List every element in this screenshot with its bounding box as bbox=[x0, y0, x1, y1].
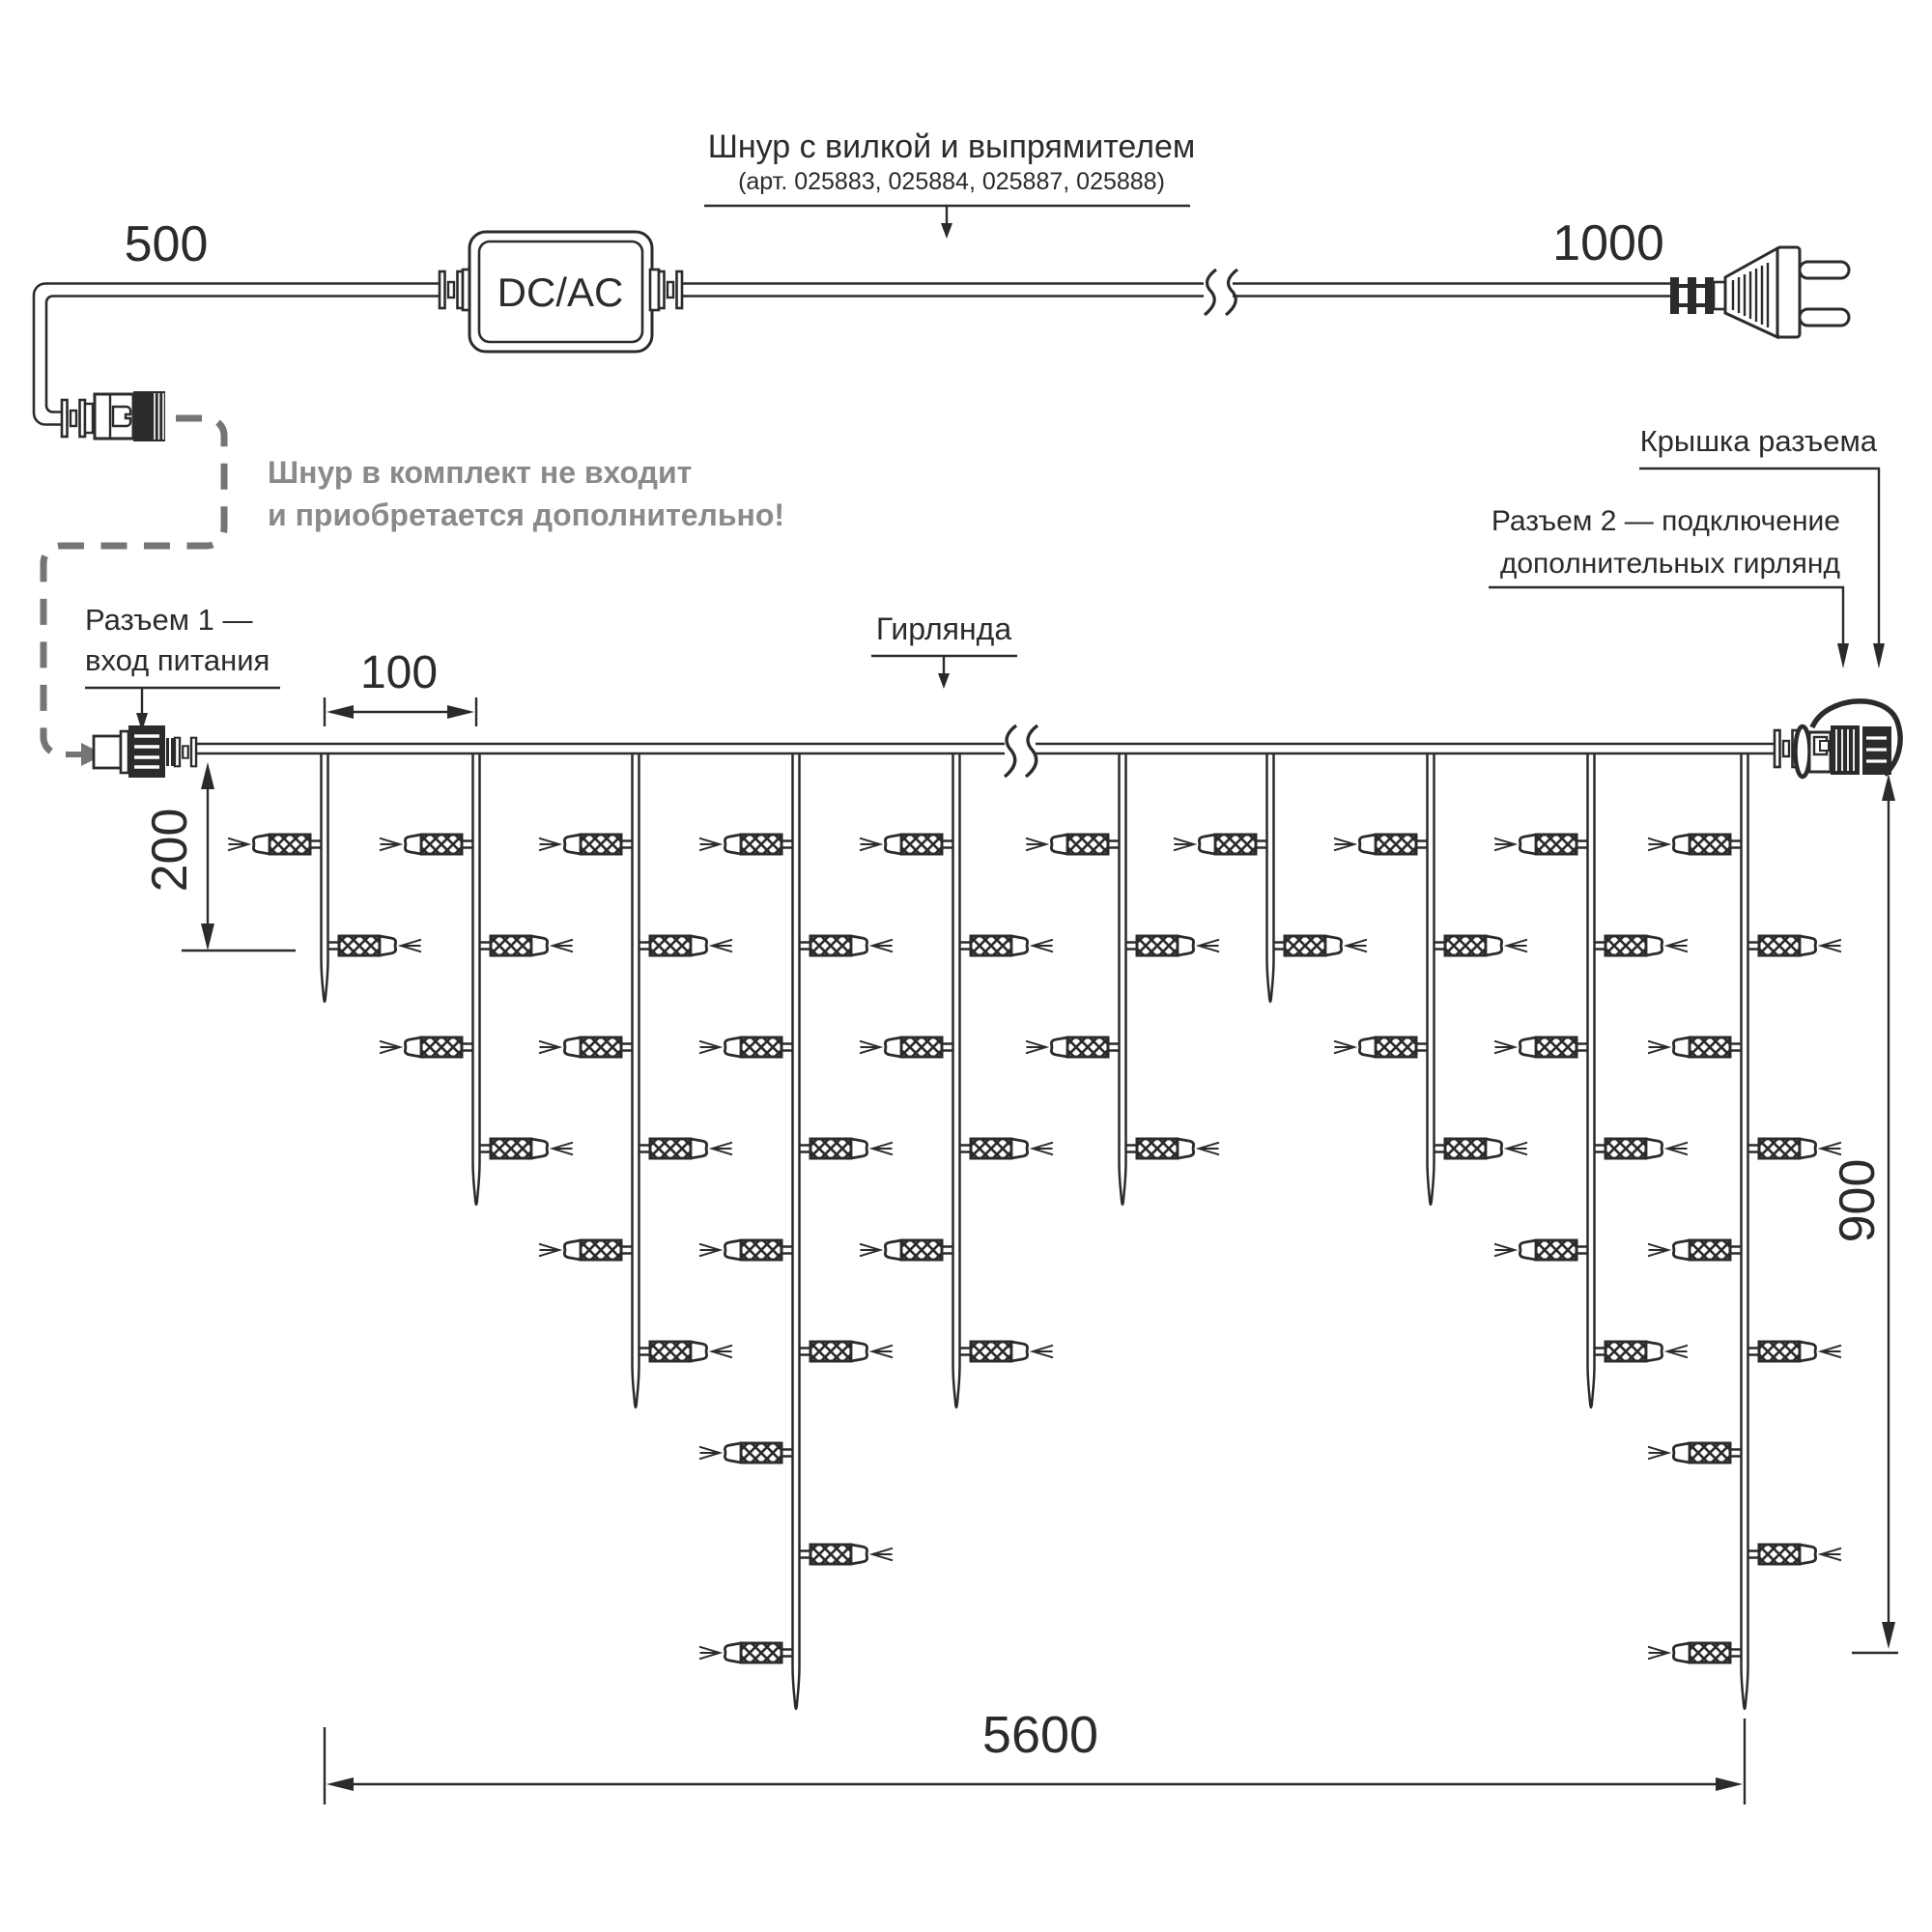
svg-text:DC/AC: DC/AC bbox=[497, 270, 624, 315]
svg-text:Разъем 2 — подключение: Разъем 2 — подключение bbox=[1492, 505, 1840, 537]
svg-text:(арт. 025883, 025884, 025887,: (арт. 025883, 025884, 025887, 025888) bbox=[738, 168, 1165, 195]
svg-text:200: 200 bbox=[142, 809, 198, 893]
svg-text:и приобретается дополнительно!: и приобретается дополнительно! bbox=[268, 497, 784, 532]
svg-text:900: 900 bbox=[1830, 1159, 1886, 1243]
svg-text:5600: 5600 bbox=[982, 1706, 1098, 1764]
svg-text:вход питания: вход питания bbox=[85, 643, 270, 677]
svg-text:дополнительных гирлянд: дополнительных гирлянд bbox=[1500, 548, 1840, 580]
svg-text:Шнур в комплект не входит: Шнур в комплект не входит bbox=[268, 455, 692, 490]
svg-text:Разъем 1 —: Разъем 1 — bbox=[85, 603, 252, 637]
svg-text:Гирлянда: Гирлянда bbox=[876, 611, 1011, 646]
svg-text:500: 500 bbox=[125, 216, 209, 272]
svg-text:1000: 1000 bbox=[1552, 215, 1664, 271]
svg-text:Крышка разъема: Крышка разъема bbox=[1640, 424, 1878, 458]
svg-text:Шнур с вилкой и выпрямителем: Шнур с вилкой и выпрямителем bbox=[708, 128, 1196, 165]
svg-text:100: 100 bbox=[360, 647, 438, 698]
